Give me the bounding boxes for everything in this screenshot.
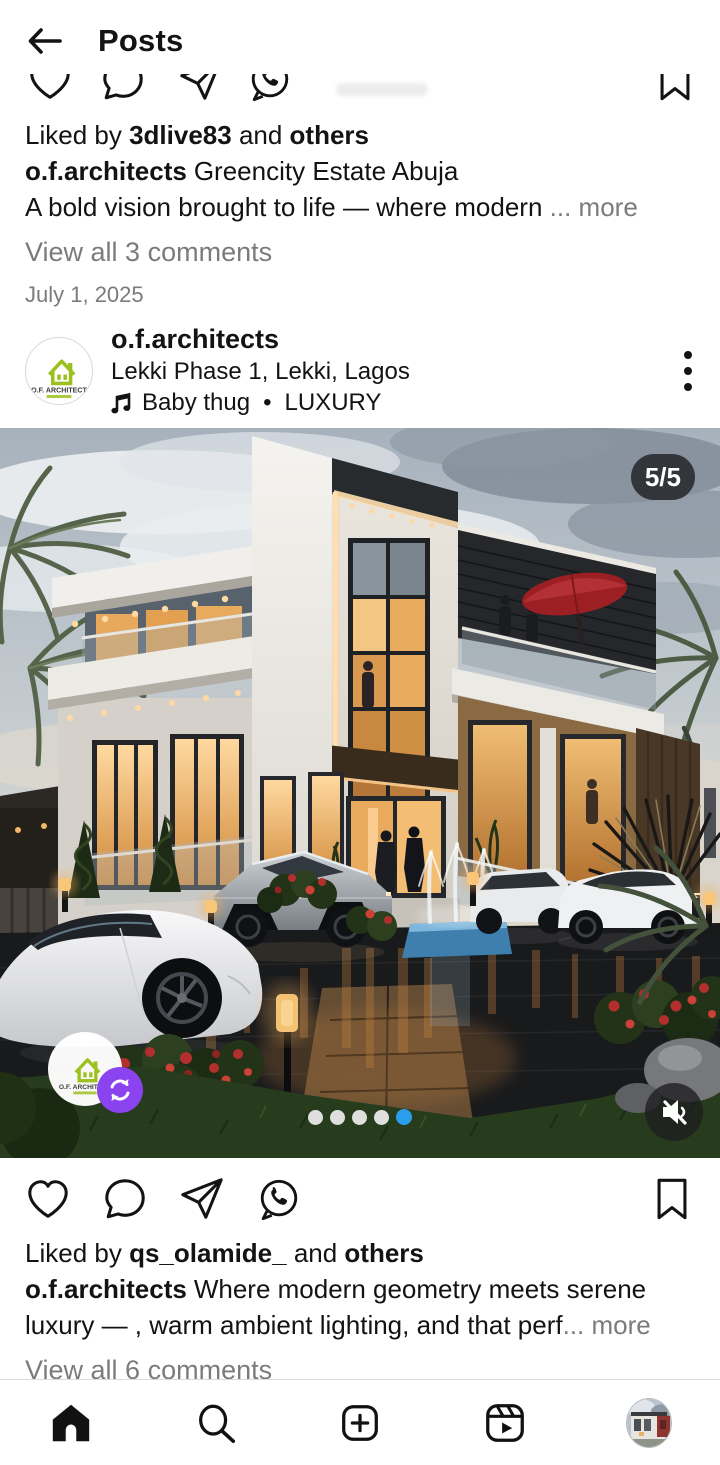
caption-username[interactable]: o.f.architects (25, 156, 187, 186)
previous-post-action-row-clipped (0, 74, 720, 108)
view-comments-link[interactable]: View all 3 comments (25, 235, 695, 269)
liked-by-others[interactable]: others (290, 120, 369, 150)
room-figure (586, 779, 598, 824)
share-icon[interactable] (178, 74, 224, 103)
carousel-image[interactable]: 5/5 (0, 428, 720, 1158)
liked-by-and: and (287, 1238, 345, 1268)
carousel-dot (308, 1110, 323, 1125)
avatar[interactable] (25, 337, 93, 405)
liked-by-others[interactable]: others (344, 1238, 423, 1268)
more-options-button[interactable] (678, 346, 698, 396)
heart-icon[interactable] (27, 74, 73, 103)
repost-arrows-icon (106, 1076, 134, 1104)
home-icon (48, 1400, 94, 1446)
whatsapp-share-button[interactable] (256, 1176, 302, 1222)
caption-ellipsis: ... (542, 192, 571, 222)
post-date: July 1, 2025 (25, 282, 695, 308)
comment-button[interactable] (102, 1176, 148, 1222)
liked-by-line: Liked by qs_olamide_ and others (25, 1236, 695, 1271)
top-bar: Posts (0, 0, 720, 74)
more-link[interactable]: more (571, 192, 637, 222)
search-icon (193, 1400, 239, 1446)
caption-line-2: A bold vision brought to life — where mo… (25, 189, 695, 225)
liker-username[interactable]: 3dlive83 (129, 120, 232, 150)
nav-home[interactable] (48, 1400, 94, 1446)
repost-badge (97, 1067, 143, 1113)
music-artist: LUXURY (285, 388, 382, 418)
username-link[interactable]: o.f.architects (111, 323, 410, 356)
carousel-counter-badge: 5/5 (631, 454, 695, 500)
caption-ellipsis: ... (563, 1310, 585, 1340)
liked-by-and: and (232, 120, 290, 150)
liker-username[interactable]: qs_olamide_ (129, 1238, 287, 1268)
nav-profile[interactable] (626, 1400, 672, 1446)
save-button[interactable] (649, 1176, 695, 1222)
arrow-left-icon (25, 21, 65, 61)
comment-icon[interactable] (100, 74, 146, 103)
bookmark-icon[interactable] (652, 74, 698, 103)
like-button[interactable] (25, 1176, 71, 1222)
bottom-nav (0, 1379, 720, 1465)
location-link[interactable]: Lekki Phase 1, Lekki, Lagos (111, 357, 410, 387)
back-button[interactable] (24, 20, 66, 62)
carousel-dot-active (396, 1109, 412, 1125)
post-header: o.f.architects Lekki Phase 1, Lekki, Lag… (0, 323, 720, 418)
nav-search[interactable] (193, 1400, 239, 1446)
reels-icon (482, 1400, 528, 1446)
liked-by-line: Liked by 3dlive83 and others (25, 118, 695, 153)
mute-button[interactable] (645, 1083, 703, 1141)
profile-avatar-image (627, 1399, 672, 1447)
window-figure (362, 661, 374, 708)
post-header-info: o.f.architects Lekki Phase 1, Lekki, Lag… (111, 323, 410, 418)
caption-line-1: o.f.architectsGreencity Estate Abuja (25, 153, 695, 189)
caption: o.f.architectsWhere modern geometry meet… (25, 1271, 695, 1343)
music-track: Baby thug (142, 388, 250, 418)
whatsapp-icon[interactable] (247, 74, 293, 103)
carousel-dot (374, 1110, 389, 1125)
liked-by-prefix: Liked by (25, 1238, 129, 1268)
carousel-dots (0, 1109, 720, 1125)
instagram-posts-screen: O.F. ARCHITECT Posts (0, 0, 720, 1465)
page-title: Posts (98, 23, 183, 59)
speaker-muted-icon (657, 1095, 691, 1129)
liked-by-prefix: Liked by (25, 120, 129, 150)
more-link[interactable]: more (584, 1310, 650, 1340)
profile-avatar (626, 1398, 672, 1448)
carousel-dot (330, 1110, 345, 1125)
nav-reels[interactable] (482, 1400, 528, 1446)
caption-title: Greencity Estate Abuja (194, 156, 458, 186)
caption-body: A bold vision brought to life — where mo… (25, 192, 542, 222)
create-plus-icon (337, 1400, 383, 1446)
music-info[interactable]: Baby thug • LUXURY (111, 388, 410, 418)
music-note-icon (111, 391, 133, 415)
previous-post-text: Liked by 3dlive83 and others o.f.archite… (0, 108, 720, 308)
main-post-text: Liked by qs_olamide_ and others o.f.arch… (0, 1232, 720, 1387)
avatar-logo (27, 339, 91, 403)
post-action-row (0, 1158, 720, 1232)
music-separator: • (263, 388, 271, 418)
share-button[interactable] (179, 1176, 225, 1222)
nav-create[interactable] (337, 1400, 383, 1446)
ghost-highlight (336, 83, 428, 96)
carousel-dot (352, 1110, 367, 1125)
kebab-icon (682, 347, 694, 395)
caption-username[interactable]: o.f.architects (25, 1274, 187, 1304)
